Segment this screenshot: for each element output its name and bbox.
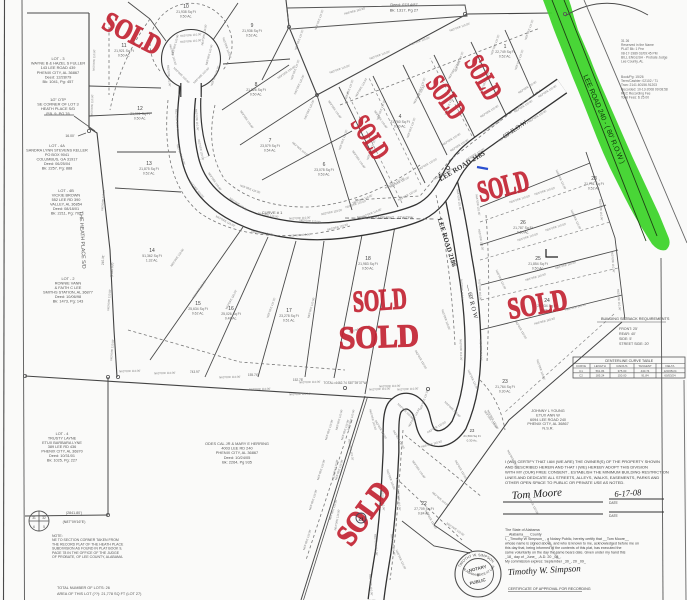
svg-text:91.84: 91.84 [641, 374, 649, 378]
svg-text:23,078 Sq Ft: 23,078 Sq Ft [314, 168, 333, 172]
svg-text:Deed: 10/31/01: Deed: 10/31/01 [49, 454, 75, 458]
svg-text:N63°09'E 110.00': N63°09'E 110.00' [299, 380, 321, 385]
svg-text:0.50 Ac.: 0.50 Ac. [517, 231, 529, 235]
svg-text:CERTIFICATE OF APPROVAL FOR RE: CERTIFICATE OF APPROVAL FOR RECORDING [508, 587, 591, 591]
svg-text:23,579 Sq Ft: 23,579 Sq Ft [260, 144, 279, 148]
svg-text:21,936 Sq Ft: 21,936 Sq Ft [242, 29, 261, 33]
svg-text:ETUX BARBARA LYNE: ETUX BARBARA LYNE [42, 441, 82, 445]
svg-text:LOT - 4A: LOT - 4A [49, 144, 65, 148]
svg-text:Bk: 2264, Pg 935: Bk: 2264, Pg 935 [222, 459, 252, 464]
svg-text:I, _Timothy W Simpson_ , a Not: I, _Timothy W Simpson_ , a Notary Public… [505, 537, 630, 541]
svg-text:CURVE: CURVE [576, 364, 586, 368]
svg-text:Bk: 2257, Pg: 888: Bk: 2257, Pg: 888 [42, 167, 73, 171]
svg-text:23,278 Sq Ft: 23,278 Sq Ft [279, 314, 298, 318]
svg-text:0.53 Ac.: 0.53 Ac. [318, 173, 330, 177]
svg-text:AREA OF THIS LOT (??): 21,778: AREA OF THIS LOT (??): 21,778 SQ FT (LOT… [57, 592, 142, 596]
svg-text:N63°09'E 110.00': N63°09'E 110.00' [90, 94, 95, 116]
svg-text:155.74': 155.74' [248, 373, 259, 377]
svg-text:N63°09'E 110.00': N63°09'E 110.00' [119, 369, 141, 374]
svg-text:0.50 Ac.: 0.50 Ac. [250, 93, 262, 97]
svg-text:(2841.80'): (2841.80') [66, 511, 82, 515]
svg-text:SMITHS STATION, AL 36877: SMITHS STATION, AL 36877 [43, 291, 93, 295]
svg-text:TOTAL=4462.74 S87°39'37"W: TOTAL=4462.74 S87°39'37"W [323, 381, 366, 385]
svg-text:31: 31 [32, 516, 36, 520]
svg-text:REAR: 40': REAR: 40' [619, 332, 636, 336]
svg-text:COLUMBUS, GA 31917: COLUMBUS, GA 31917 [36, 158, 77, 162]
svg-text:0.50 Ac.: 0.50 Ac. [118, 54, 130, 58]
svg-text:PHENIX CITY, AL 36867: PHENIX CITY, AL 36867 [527, 422, 568, 426]
svg-text:25,026 Sq Ft: 25,026 Sq Ft [221, 312, 240, 316]
svg-text:0.50 Ac.: 0.50 Ac. [362, 267, 374, 271]
svg-text:N63°09'E 110.00': N63°09'E 110.00' [289, 392, 311, 397]
svg-text:FRONT: 25': FRONT: 25' [619, 327, 638, 331]
svg-text:N63°09'E 110.00': N63°09'E 110.00' [219, 375, 241, 380]
svg-text:Total Fees: $ 25.00: Total Fees: $ 25.00 [621, 96, 649, 100]
svg-text:185.24: 185.24 [596, 374, 605, 378]
svg-text:CENTERLINE CURVE TABLE: CENTERLINE CURVE TABLE [605, 359, 654, 363]
svg-text:0.52 Ac.: 0.52 Ac. [499, 55, 511, 59]
svg-text:Bk: 1317, Pg 27: Bk: 1317, Pg 27 [390, 8, 419, 13]
svg-text:561.84: 561.84 [596, 369, 605, 373]
svg-text:LOT - 4: LOT - 4 [56, 432, 69, 436]
svg-text:N63°09'E 110.00': N63°09'E 110.00' [154, 371, 176, 376]
svg-text:RONNIE VANN: RONNIE VANN [55, 282, 82, 286]
svg-text:N63°09'E 110.00': N63°09'E 110.00' [459, 339, 464, 361]
svg-text:& FAITH C LEE: & FAITH C LEE [55, 286, 82, 290]
svg-text:TRUSTY LAYNE: TRUSTY LAYNE [48, 436, 77, 440]
svg-text:BUILDING SETBACK REQUIREMENTS: BUILDING SETBACK REQUIREMENTS [601, 317, 670, 321]
svg-text:(N87°09'16"E): (N87°09'16"E) [63, 520, 86, 524]
svg-text:RADIUS: RADIUS [617, 364, 628, 368]
svg-text:OTHER OPEN SPACE TO PUBLIC OR: OTHER OPEN SPACE TO PUBLIC OR PRIVATE US… [505, 480, 624, 485]
svg-text:C2: C2 [579, 374, 583, 378]
svg-text:JOHNNY L YOUNG: JOHNNY L YOUNG [531, 409, 565, 413]
svg-text:25,634 Sq Ft: 25,634 Sq Ft [188, 307, 207, 311]
svg-text:LOT - 4B: LOT - 4B [58, 189, 74, 193]
svg-text:0.54 Ac.: 0.54 Ac. [264, 149, 276, 153]
svg-text:DATE: DATE [609, 501, 619, 505]
svg-text:C1: C1 [579, 369, 583, 373]
svg-text:whose name is signed above, an: whose name is signed above, and who is k… [505, 542, 639, 546]
svg-text:6-17-08: 6-17-08 [614, 487, 642, 499]
svg-text:ETUX ANN W: ETUX ANN W [536, 413, 560, 417]
svg-text:this day that, being informed: this day that, being informed of the con… [505, 546, 621, 550]
svg-text:16.00': 16.00' [65, 134, 74, 138]
svg-text:21,901 Sq Ft: 21,901 Sq Ft [130, 112, 149, 116]
svg-text:SIDE: 5': SIDE: 5' [619, 337, 632, 341]
svg-text:0.30 Ac.: 0.30 Ac. [467, 439, 478, 443]
svg-text:5: 5 [43, 525, 45, 529]
svg-text:21,764 Sq Ft: 21,764 Sq Ft [495, 385, 514, 389]
svg-text:0.52 Ac.: 0.52 Ac. [143, 172, 155, 176]
svg-text:_18_ day of _June_ , A.D. 20: _18_ day of _June_ , A.D. 20 _08_. [504, 555, 561, 559]
svg-text:Bk: 1041, Pg: 457: Bk: 1041, Pg: 457 [43, 79, 74, 84]
svg-text:(2630.03'): (2630.03') [110, 262, 115, 277]
svg-text:389 LEE RD 436: 389 LEE RD 436 [48, 445, 77, 449]
svg-text:0.50 Ac.: 0.50 Ac. [532, 267, 544, 271]
svg-text:N63°09'E 110.00': N63°09'E 110.00' [479, 339, 484, 361]
svg-text:N.S.R.: N.S.R. [542, 427, 553, 431]
svg-text:0.30 Ac.: 0.30 Ac. [499, 390, 511, 394]
svg-text:SOLD: SOLD [338, 317, 419, 356]
svg-text:Bk: 1473, Pg: 143: Bk: 1473, Pg: 143 [53, 300, 84, 304]
svg-text:375.00: 375.00 [618, 369, 627, 373]
svg-text:440.74: 440.74 [641, 369, 650, 373]
svg-text:21,791 Sq Ft: 21,791 Sq Ft [584, 182, 603, 186]
svg-text:743.97': 743.97' [190, 370, 201, 374]
svg-text:0.52 Ac.: 0.52 Ac. [246, 34, 258, 38]
svg-text:N63°09'E 110.00': N63°09'E 110.00' [249, 387, 271, 392]
svg-text:51,362 Sq Ft: 51,362 Sq Ft [142, 254, 161, 258]
svg-text:21,854 Sq Ft: 21,854 Sq Ft [528, 262, 547, 266]
svg-text:0.50 Ac.: 0.50 Ac. [134, 117, 146, 121]
svg-text:same voluntarily on the day th: same voluntarily on the day the same bea… [505, 551, 626, 555]
svg-text:0.52 Ac.: 0.52 Ac. [588, 187, 600, 191]
svg-text:Deed: 08/18/01: Deed: 08/18/01 [53, 207, 79, 211]
svg-text:0.48 Ac.: 0.48 Ac. [225, 317, 237, 321]
svg-text:60/53/24: 60/53/24 [664, 374, 676, 378]
svg-text:__Alabama___ County: __Alabama___ County [504, 533, 542, 537]
svg-text:21,826 Sq Ft: 21,826 Sq Ft [246, 88, 265, 92]
svg-text:SOLD: SOLD [352, 282, 408, 319]
svg-text:VALLEY, AL 36854: VALLEY, AL 36854 [50, 203, 83, 207]
svg-text:OF PROBATE, OF LEE COUNTY, ALA: OF PROBATE, OF LEE COUNTY, ALABAMA. [52, 555, 123, 559]
svg-text:TOTAL NUMBER OF LOTS: 26: TOTAL NUMBER OF LOTS: 26 [57, 586, 110, 590]
svg-text:N63°09'E 110.00': N63°09'E 110.00' [92, 49, 97, 71]
svg-text:0.62 Ac.: 0.62 Ac. [192, 312, 204, 316]
svg-text:0.51 Ac.: 0.51 Ac. [283, 319, 295, 323]
svg-text:The State of Alabama: The State of Alabama [505, 528, 540, 532]
svg-text:AND DESCRIBED HEREIN AND THAT: AND DESCRIBED HEREIN AND THAT I (WE) HER… [505, 464, 648, 469]
svg-text:0.50 Ac.: 0.50 Ac. [394, 125, 406, 129]
svg-text:22,749 Sq Ft: 22,749 Sq Ft [495, 50, 514, 54]
svg-text:21,983 Sq Ft: 21,983 Sq Ft [358, 262, 377, 266]
svg-text:0.50 Ac.: 0.50 Ac. [180, 15, 192, 19]
svg-text:32: 32 [42, 516, 46, 520]
svg-text:150.00: 150.00 [618, 374, 627, 378]
svg-text:LENGTH: LENGTH [594, 364, 606, 368]
svg-text:215.31': 215.31' [101, 254, 106, 265]
svg-text:SANDRA LYNN STEVENS KELLER: SANDRA LYNN STEVENS KELLER [26, 149, 88, 153]
svg-text:LOT - 2: LOT - 2 [62, 277, 75, 281]
svg-text:6094 LEE ROAD 240: 6094 LEE ROAD 240 [530, 418, 566, 422]
svg-text:Bk: 2211, Pg: 702: Bk: 2211, Pg: 702 [51, 212, 81, 216]
svg-text:TANGENT: TANGENT [638, 364, 652, 368]
svg-text:I (WE) CERTIFY THAT I AM (WE A: I (WE) CERTIFY THAT I AM (WE ARE) THE OW… [505, 459, 660, 464]
svg-text:6: 6 [33, 525, 35, 529]
svg-text:STREET SIDE: 20': STREET SIDE: 20' [619, 342, 649, 346]
svg-text:Lee County, AL: Lee County, AL [621, 60, 643, 64]
svg-text:21,760 Sq Ft: 21,760 Sq Ft [390, 120, 409, 124]
svg-text:Deed: 10/06/98: Deed: 10/06/98 [55, 295, 81, 299]
svg-text:21,875 Sq Ft: 21,875 Sq Ft [139, 167, 158, 171]
svg-text:21,938 Sq Ft: 21,938 Sq Ft [176, 10, 195, 14]
svg-text:Deed: 07/14/87: Deed: 07/14/87 [390, 2, 418, 7]
svg-text:552 LEE RD 390: 552 LEE RD 390 [52, 198, 81, 202]
svg-text:21,787 Sq Ft: 21,787 Sq Ft [513, 226, 532, 230]
svg-text:VICKIE BROWN: VICKIE BROWN [52, 194, 81, 198]
svg-text:PO BOX 9041: PO BOX 9041 [45, 153, 69, 157]
svg-text:DELTA: DELTA [666, 364, 675, 368]
svg-text:Deed: 06/25/04: Deed: 06/25/04 [44, 162, 71, 166]
svg-text:21,564 Sq Ft: 21,564 Sq Ft [463, 434, 480, 438]
svg-text:LINES AND DEDICATE ALL STREETS: LINES AND DEDICATE ALL STREETS, ALLEYS, … [505, 475, 659, 480]
svg-text:Bk: 1025, Pg: 227: Bk: 1025, Pg: 227 [47, 458, 77, 462]
svg-text:23: 23 [470, 428, 475, 433]
svg-text:DATE: DATE [609, 514, 619, 518]
svg-text:120/05/24: 120/05/24 [664, 369, 677, 373]
svg-text:WITH MY (OUR) FREE CONSENT , E: WITH MY (OUR) FREE CONSENT , ESTABLISH T… [505, 470, 669, 475]
svg-text:PHENIX CITY, AL 36870: PHENIX CITY, AL 36870 [41, 450, 82, 454]
svg-text:1.32 Ac.: 1.32 Ac. [146, 259, 158, 263]
svg-text:21: 21 [358, 517, 364, 522]
